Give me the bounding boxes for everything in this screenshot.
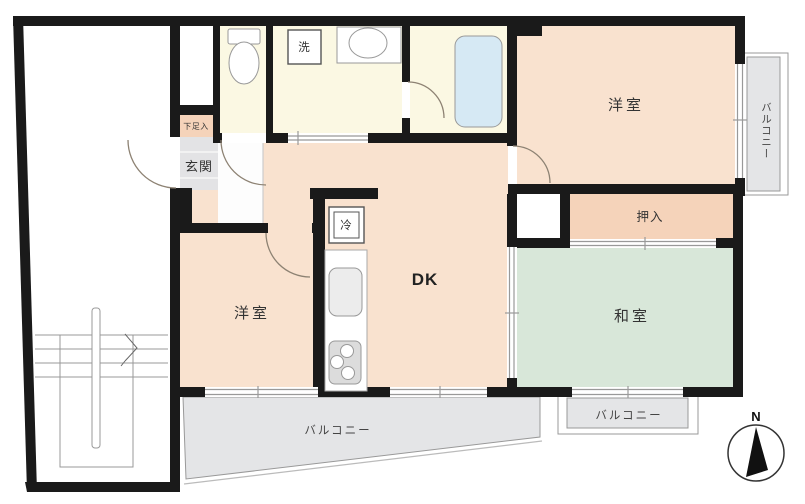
sliding-door-washroom xyxy=(288,133,368,143)
room-western-left-label: 洋室 xyxy=(234,305,270,322)
floor-plan-canvas: N 洋室 洋室 DK 和室 押入 玄関 下足入 洗 冷 バルコニー バルコニー … xyxy=(0,0,805,504)
wall-segment xyxy=(487,387,572,397)
stove-burner xyxy=(331,356,344,369)
wall-segment xyxy=(213,26,220,143)
room-dk-label: DK xyxy=(412,270,439,289)
wall-segment xyxy=(402,118,410,133)
wall-segment xyxy=(172,105,218,115)
shoe-cabinet-label: 下足入 xyxy=(183,122,209,131)
bathtub xyxy=(455,36,502,127)
wall-segment xyxy=(733,194,743,397)
balcony-bottom-floor xyxy=(183,397,540,479)
room-western-top-label: 洋室 xyxy=(608,97,644,114)
wall-segment xyxy=(368,133,508,143)
genkan-step-area xyxy=(218,143,263,223)
balcony-bottom-label: バルコニー xyxy=(304,424,371,437)
wall-segment xyxy=(310,188,378,199)
balcony-bottom-right-label: バルコニー xyxy=(595,409,662,422)
fridge-label: 冷 xyxy=(340,219,352,232)
wall-segment xyxy=(25,482,180,492)
wall-segment xyxy=(402,26,410,82)
window xyxy=(735,64,745,178)
wall-segment xyxy=(170,190,180,492)
kitchen-sink xyxy=(329,268,362,316)
wall-segment xyxy=(517,26,542,36)
washing-machine-label: 洗 xyxy=(298,41,310,54)
wall-segment xyxy=(266,26,273,133)
window xyxy=(390,387,487,397)
floor-plan: N 洋室 洋室 DK 和室 押入 玄関 下足入 洗 冷 バルコニー バルコニー … xyxy=(0,0,805,504)
wall-segment xyxy=(507,26,517,146)
stair-handrail xyxy=(92,308,100,448)
wall-segment xyxy=(170,387,205,397)
wall-segment xyxy=(313,188,325,393)
wall-segment xyxy=(312,223,325,233)
balcony-right-label: バルコニー xyxy=(760,102,772,160)
room-washitsu-label: 和室 xyxy=(614,308,650,325)
stove-burner xyxy=(341,345,354,358)
entrance-door-arc xyxy=(128,140,176,188)
compass-north-label: N xyxy=(751,409,760,424)
wall-segment xyxy=(13,16,745,26)
wall-segment xyxy=(508,184,743,194)
sliding-door-fusuma xyxy=(570,239,716,248)
closet-oshiire-label: 押入 xyxy=(636,210,663,224)
wall-segment xyxy=(735,16,745,64)
staircase xyxy=(35,308,168,467)
wall-segment xyxy=(13,16,37,492)
wall-segment xyxy=(266,133,290,143)
wall-segment xyxy=(683,387,743,397)
wall-segment xyxy=(170,16,180,137)
genkan-label: 玄関 xyxy=(185,159,213,174)
toilet-bowl xyxy=(229,42,259,84)
stair-direction-arrow xyxy=(125,334,137,361)
washbasin-bowl xyxy=(349,28,387,58)
wall-segment xyxy=(170,188,192,233)
wall-segment xyxy=(716,238,733,248)
compass: N xyxy=(728,409,784,481)
stove-burner xyxy=(342,367,355,380)
window xyxy=(205,387,318,397)
wall-segment xyxy=(560,194,570,248)
